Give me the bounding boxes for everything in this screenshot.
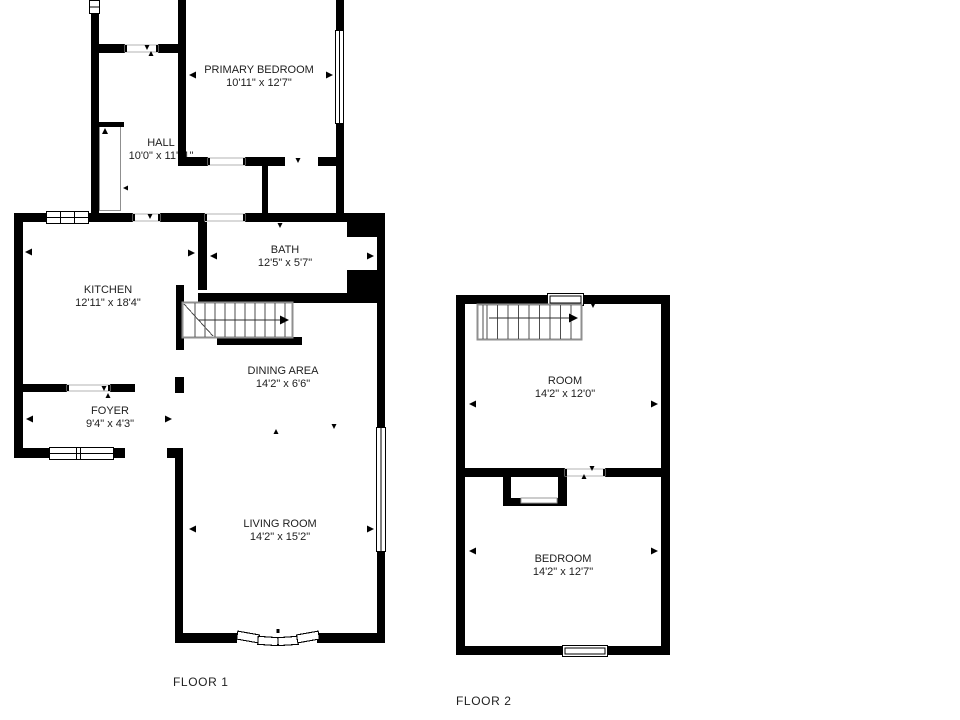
room-dims: 14'2" x 6'6": [248, 378, 319, 391]
room-label-hall: HALL 10'0" x 11'11": [129, 137, 194, 163]
room-label-living-room: LIVING ROOM 14'2" x 15'2": [243, 518, 316, 544]
room-label-kitchen: KITCHEN 12'11" x 18'4": [75, 284, 141, 310]
room-dims: 14'2" x 12'0": [535, 388, 595, 401]
room-dims: 9'4" x 4'3": [86, 418, 134, 431]
room-name: HALL: [129, 137, 194, 150]
floor-label-2: FLOOR 2: [456, 694, 512, 708]
room-name: ROOM: [535, 375, 595, 388]
room-label-foyer: FOYER 9'4" x 4'3": [86, 405, 134, 431]
room-name: LIVING ROOM: [243, 518, 316, 531]
room-name: DINING AREA: [248, 365, 319, 378]
floorplan-canvas: PRIMARY BEDROOM 10'11" x 12'7" HALL 10'0…: [0, 0, 960, 720]
room-dims: 14'2" x 15'2": [243, 531, 316, 544]
room-label-primary-bedroom: PRIMARY BEDROOM 10'11" x 12'7": [204, 64, 314, 90]
floor-label-1: FLOOR 1: [173, 675, 229, 689]
labels-layer: PRIMARY BEDROOM 10'11" x 12'7" HALL 10'0…: [0, 0, 960, 720]
room-dims: 10'11" x 12'7": [204, 77, 314, 90]
room-name: BEDROOM: [533, 553, 593, 566]
room-label-dining-area: DINING AREA 14'2" x 6'6": [248, 365, 319, 391]
room-dims: 14'2" x 12'7": [533, 566, 593, 579]
room-label-bedroom: BEDROOM 14'2" x 12'7": [533, 553, 593, 579]
room-dims: 12'5" x 5'7": [258, 257, 312, 270]
room-label-bath: BATH 12'5" x 5'7": [258, 244, 312, 270]
room-name: BATH: [258, 244, 312, 257]
room-name: FOYER: [86, 405, 134, 418]
room-name: PRIMARY BEDROOM: [204, 64, 314, 77]
room-dims: 10'0" x 11'11": [129, 150, 194, 163]
room-name: KITCHEN: [75, 284, 141, 297]
room-dims: 12'11" x 18'4": [75, 297, 141, 310]
room-label-room: ROOM 14'2" x 12'0": [535, 375, 595, 401]
